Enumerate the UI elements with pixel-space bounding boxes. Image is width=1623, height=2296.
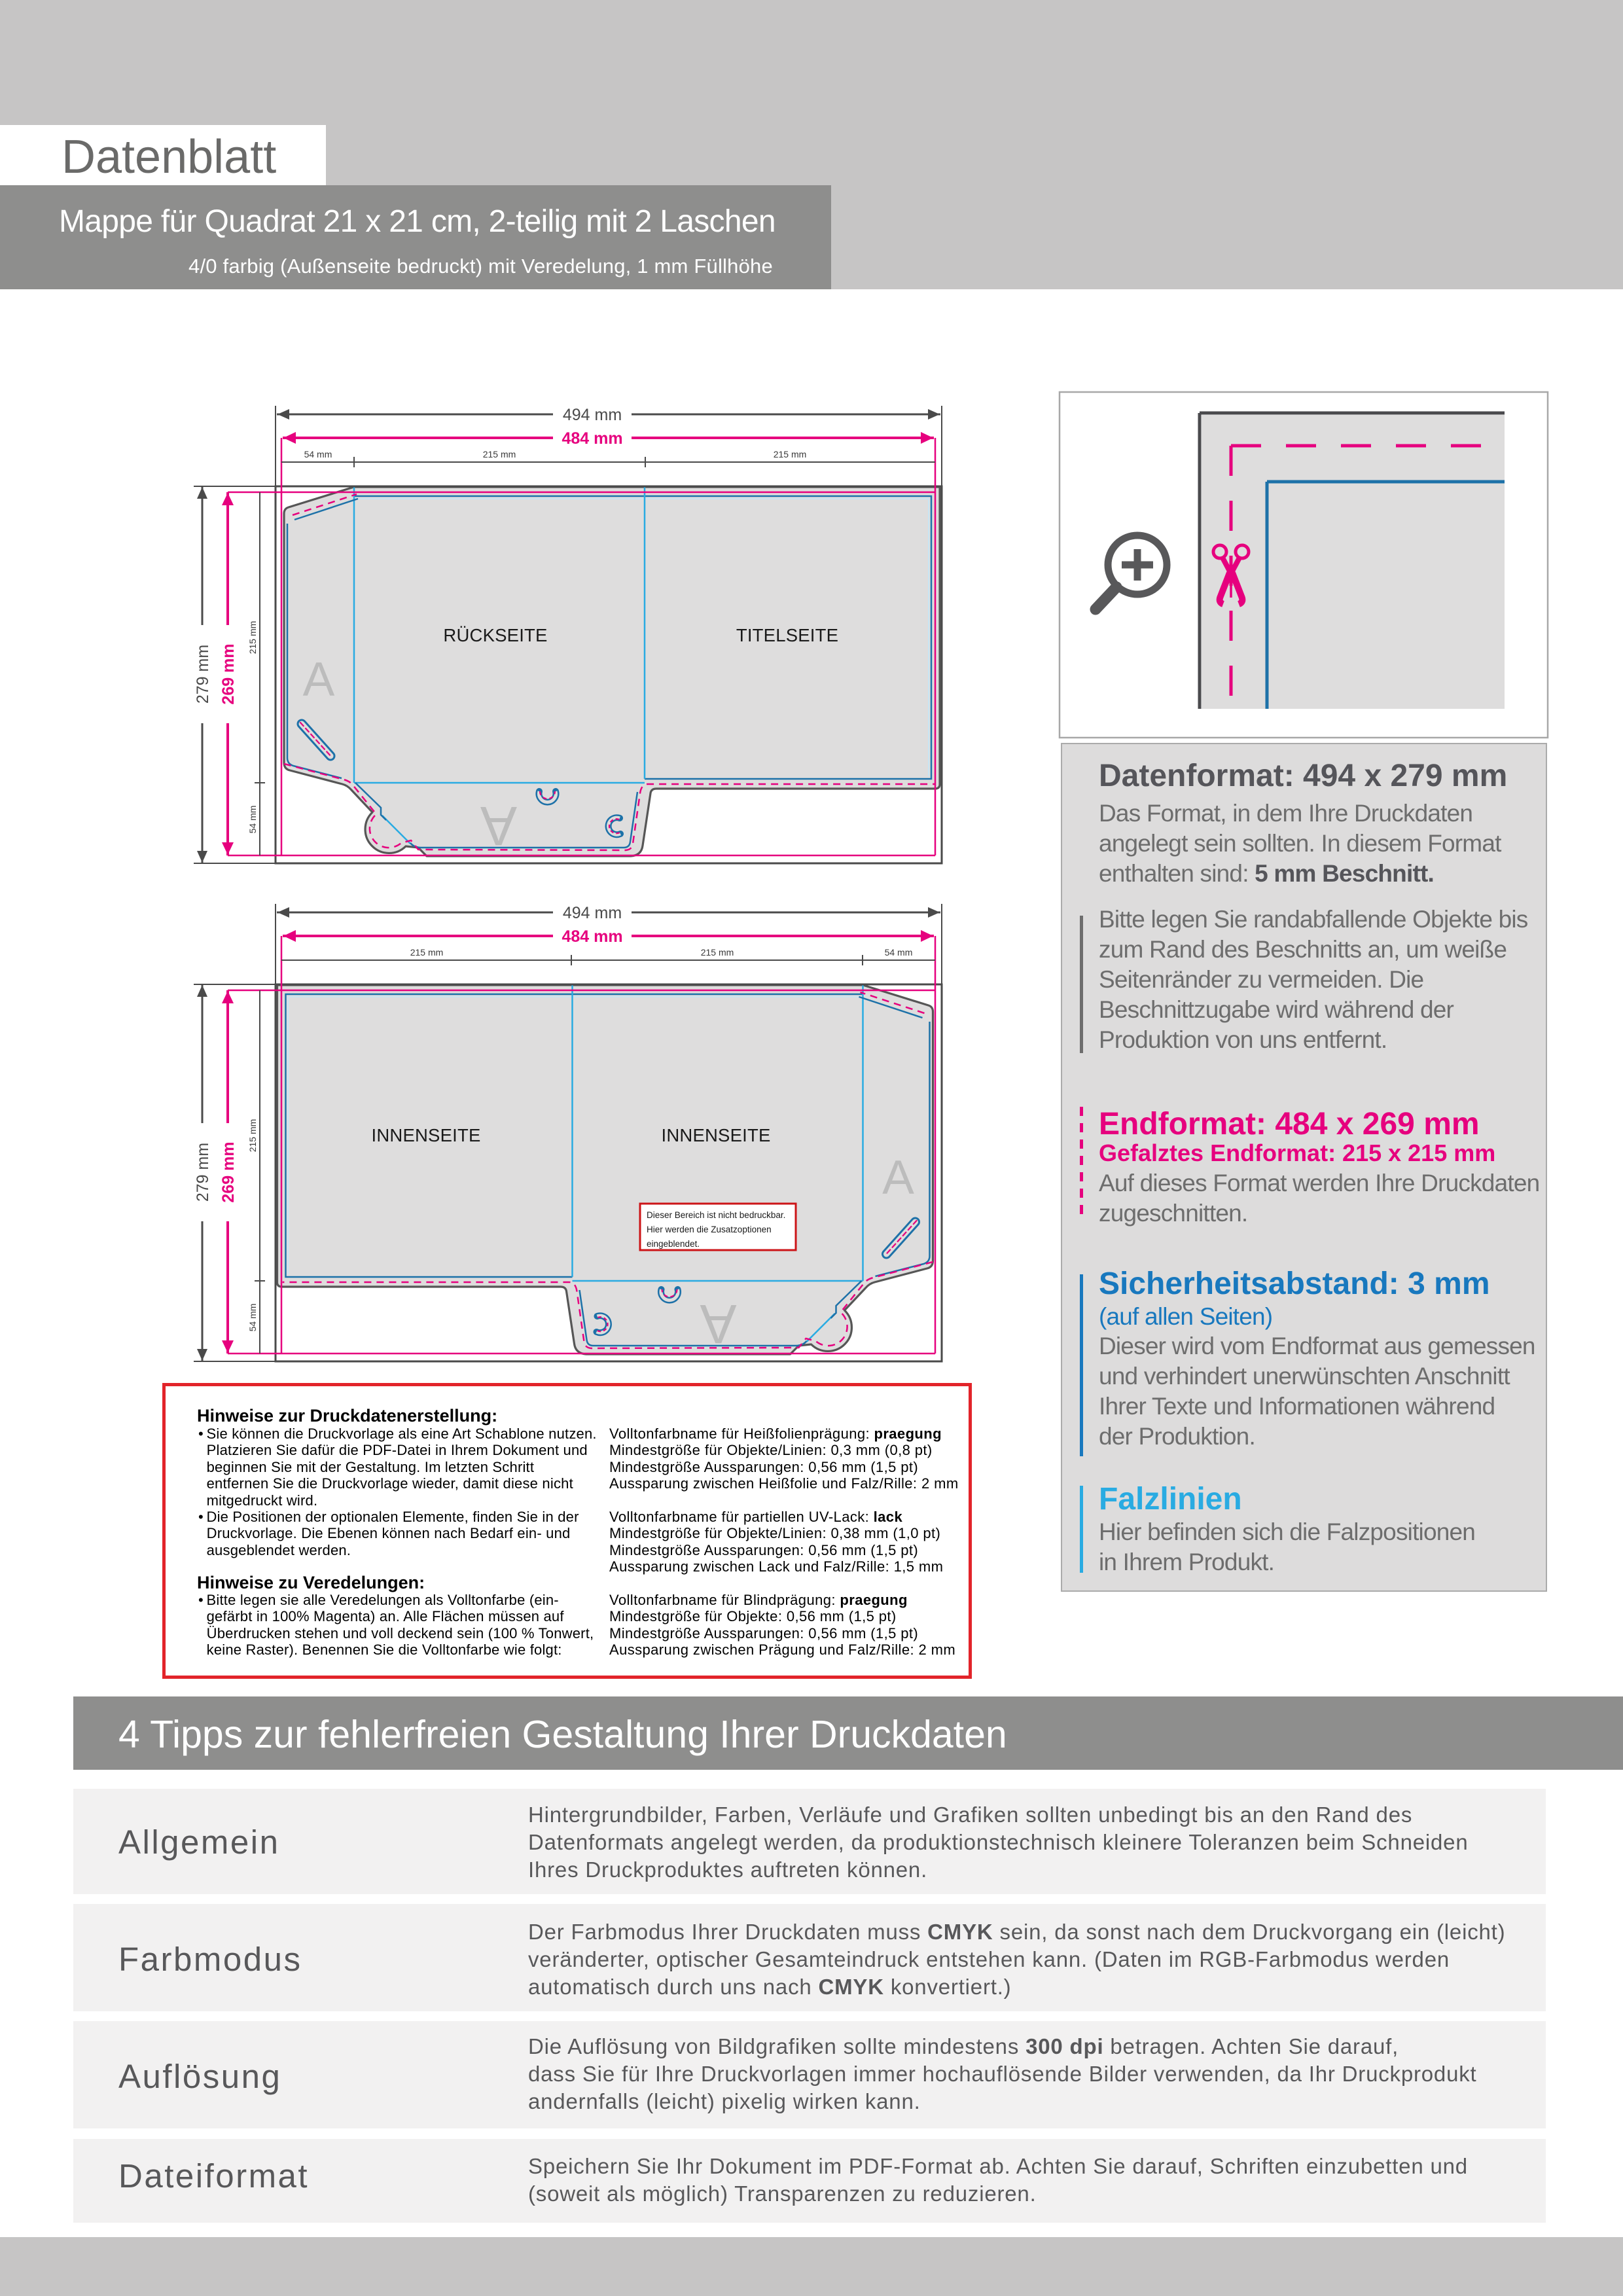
svg-text:215 mm: 215 mm [701, 947, 734, 958]
svg-text:269 mm: 269 mm [219, 643, 238, 704]
svg-text:279 mm: 279 mm [194, 645, 212, 704]
svg-text:269 mm: 269 mm [219, 1141, 238, 1202]
svg-text:494 mm: 494 mm [563, 904, 622, 922]
svg-text:54 mm: 54 mm [304, 449, 332, 459]
svg-text:484 mm: 484 mm [562, 927, 622, 946]
svg-text:494 mm: 494 mm [563, 406, 622, 424]
svg-text:215 mm: 215 mm [774, 449, 807, 459]
svg-text:INNENSEITE: INNENSEITE [661, 1125, 770, 1145]
svg-text:54 mm: 54 mm [247, 806, 258, 834]
svg-text:eingeblendet.: eingeblendet. [647, 1239, 700, 1249]
svg-text:279 mm: 279 mm [194, 1143, 212, 1202]
svg-text:Hier werden die Zusatzoptionen: Hier werden die Zusatzoptionen [647, 1225, 772, 1234]
svg-text:215 mm: 215 mm [483, 449, 516, 459]
svg-text:215 mm: 215 mm [247, 621, 258, 655]
svg-text:215 mm: 215 mm [247, 1119, 258, 1153]
svg-text:484 mm: 484 mm [562, 429, 622, 448]
svg-text:215 mm: 215 mm [410, 947, 444, 958]
svg-text:TITELSEITE: TITELSEITE [736, 625, 838, 645]
svg-text:Dieser Bereich ist nicht bedru: Dieser Bereich ist nicht bedruckbar. [647, 1210, 785, 1220]
svg-text:54 mm: 54 mm [885, 947, 913, 958]
svg-text:54 mm: 54 mm [247, 1304, 258, 1332]
svg-text:INNENSEITE: INNENSEITE [371, 1125, 480, 1145]
svg-text:RÜCKSEITE: RÜCKSEITE [443, 625, 547, 645]
